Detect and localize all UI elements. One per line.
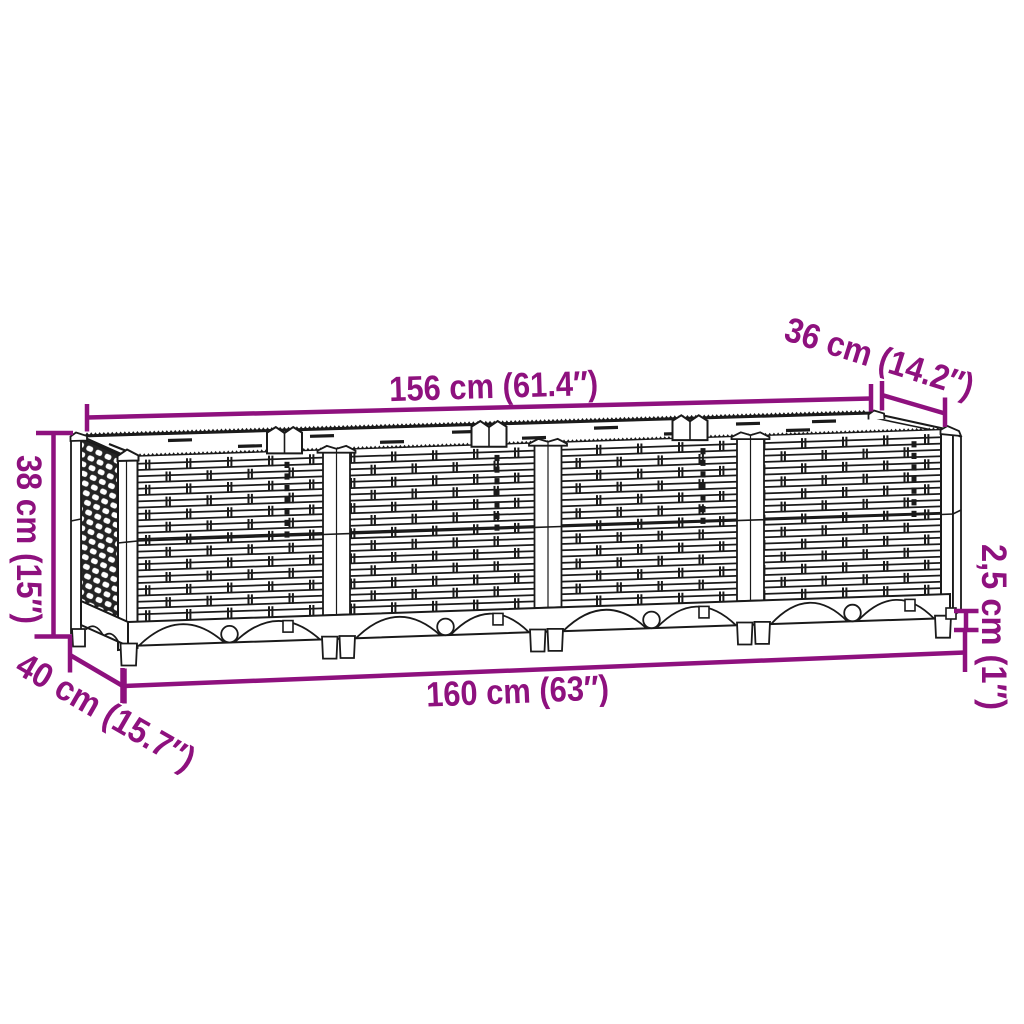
- svg-text:40 cm (15.7″): 40 cm (15.7″): [9, 645, 202, 779]
- svg-text:36 cm (14.2″): 36 cm (14.2″): [780, 310, 979, 406]
- svg-text:156 cm (61.4″): 156 cm (61.4″): [389, 364, 599, 409]
- svg-text:2,5 cm (1″): 2,5 cm (1″): [974, 544, 1013, 710]
- svg-text:160 cm (63″): 160 cm (63″): [425, 668, 609, 714]
- svg-text:38 cm (15″): 38 cm (15″): [9, 455, 48, 624]
